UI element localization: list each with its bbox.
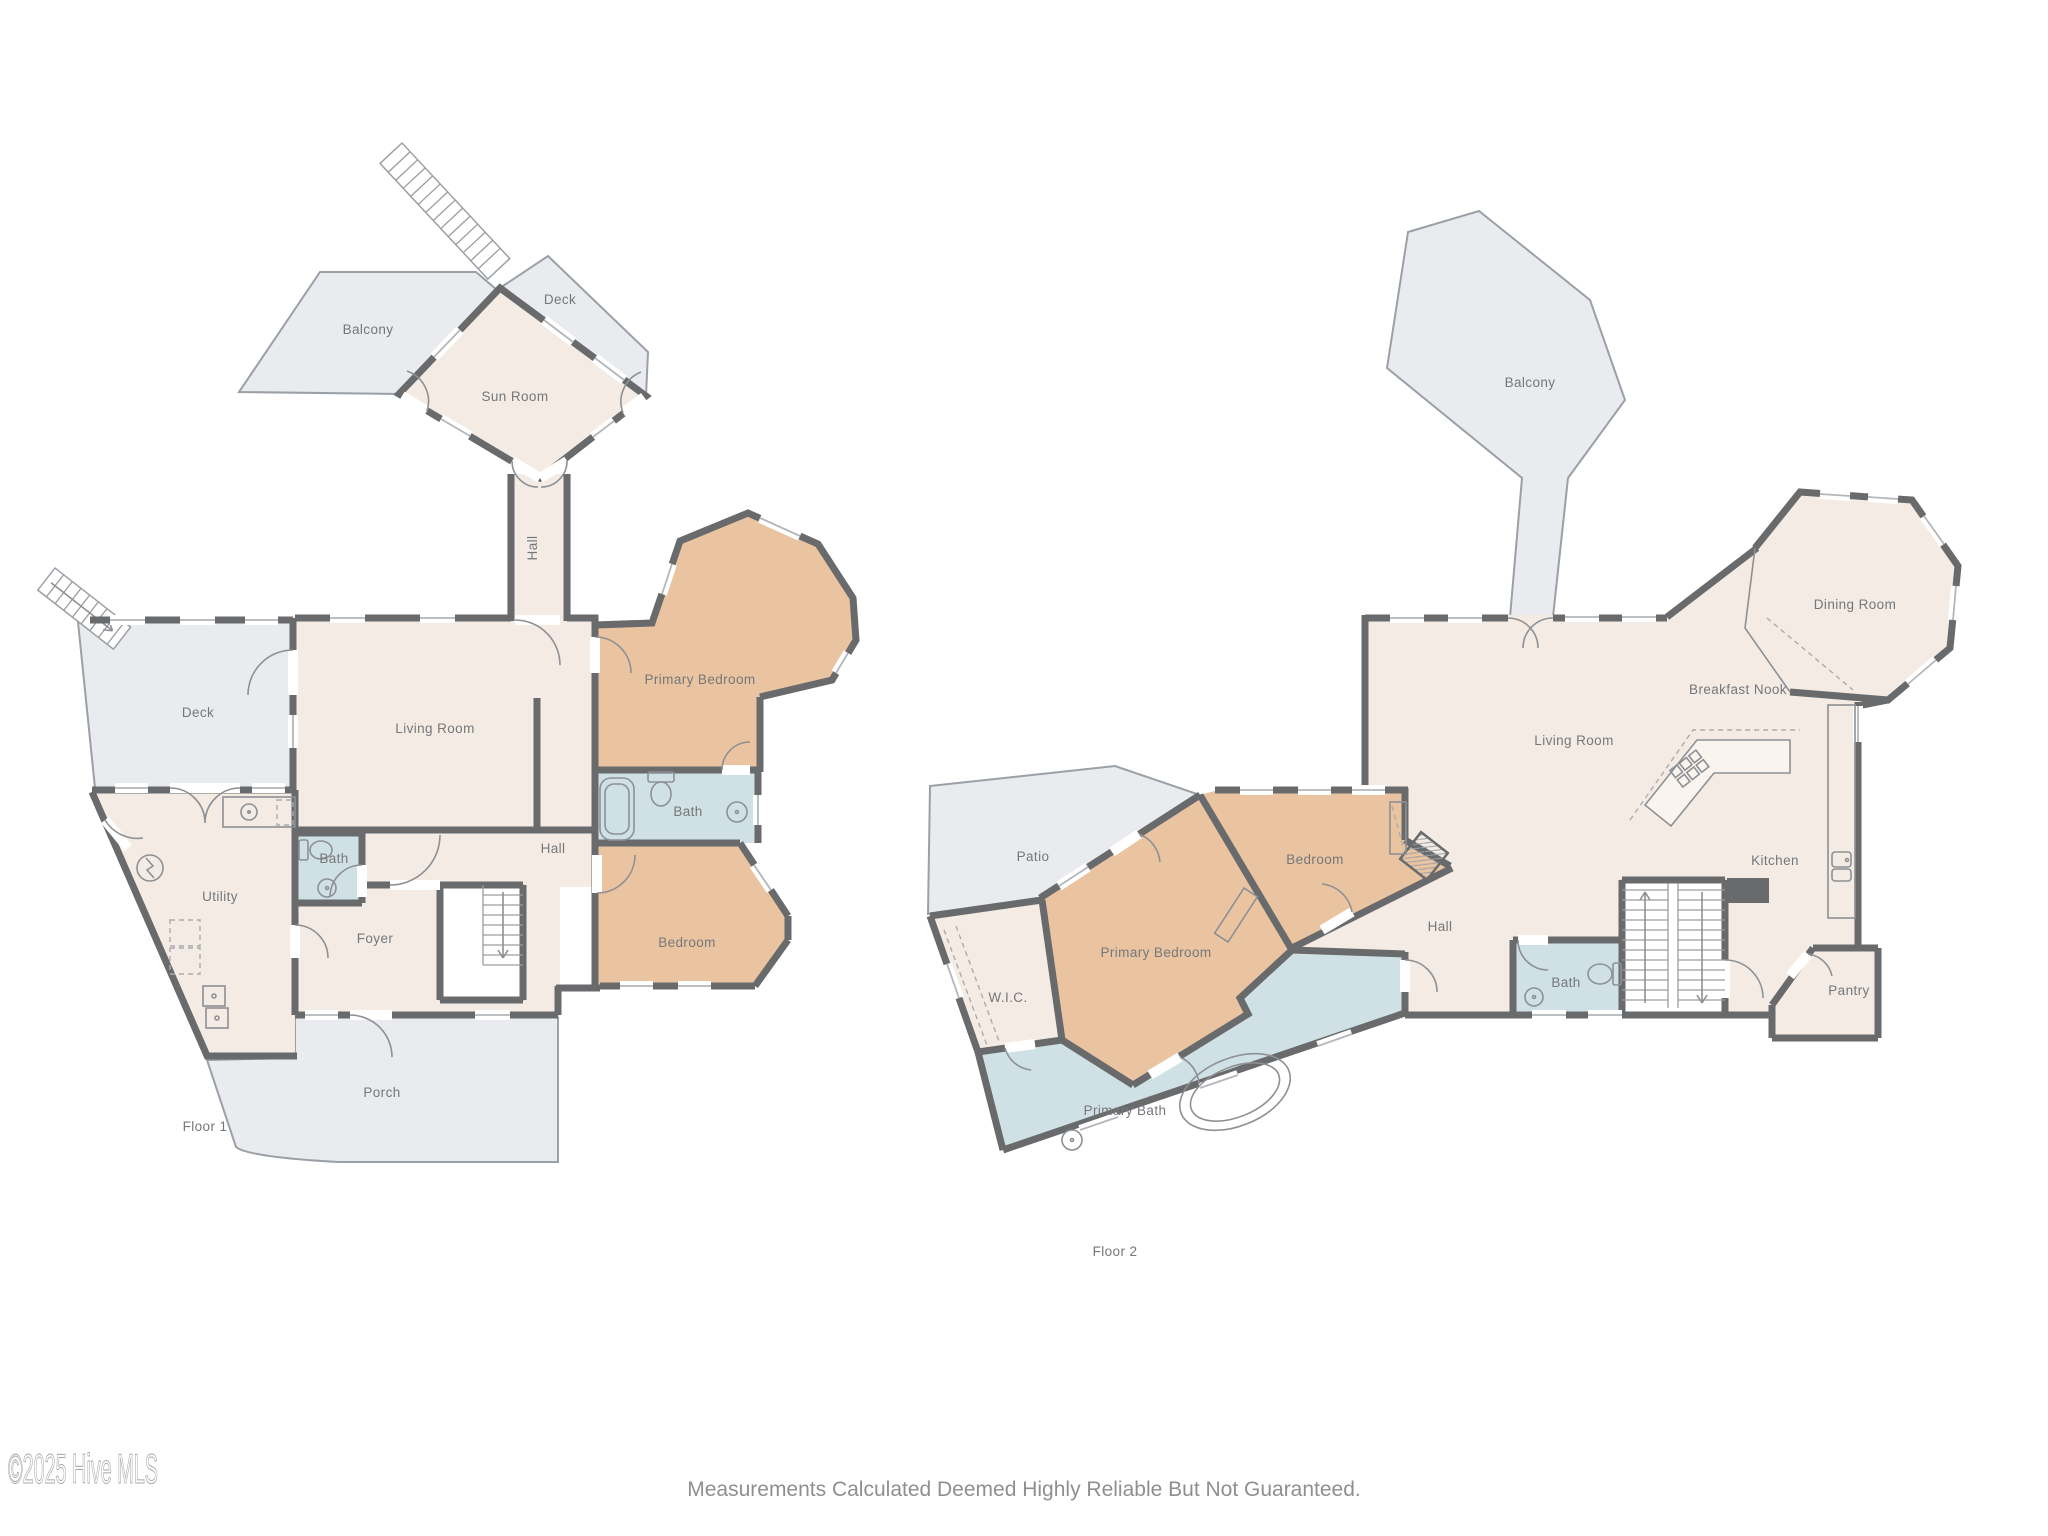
primary-bedroom-f1: [595, 513, 856, 770]
floor2-title: Floor 2: [1093, 1244, 1138, 1259]
room-label-foyer-f1: Foyer: [357, 931, 394, 946]
room-label-bedroom-f1: Bedroom: [658, 935, 716, 950]
room-label-kitchen-f2: Kitchen: [1751, 853, 1799, 868]
room-label-primary-bedroom-f2: Primary Bedroom: [1100, 945, 1211, 960]
room-label-bath-f1: Bath: [673, 804, 702, 819]
room-label-bath-f2: Bath: [1551, 975, 1580, 990]
floorplan-canvas: Balcony Deck Sun Room Hall Deck Living R…: [0, 0, 2048, 1536]
room-label-pantry-f2: Pantry: [1828, 983, 1869, 998]
floor2-plan: Balcony Dining Room Breakfast Nook Livin…: [928, 211, 1958, 1259]
room-label-utility-f1: Utility: [202, 889, 238, 904]
room-label-bedroom-f2: Bedroom: [1286, 852, 1344, 867]
room-label-living-room-f2: Living Room: [1534, 733, 1613, 748]
floor1-plan: Balcony Deck Sun Room Hall Deck Living R…: [38, 143, 856, 1162]
room-label-wic-f2: W.I.C.: [988, 990, 1027, 1005]
room-label-deck-top-f1: Deck: [544, 292, 576, 307]
sink-primary-bath-icon: [1062, 1130, 1082, 1150]
room-label-dining-room-f2: Dining Room: [1814, 597, 1896, 612]
room-label-breakfast-nook-f2: Breakfast Nook: [1689, 682, 1787, 697]
room-label-deck-f1: Deck: [182, 705, 214, 720]
room-label-primary-bedroom-f1: Primary Bedroom: [644, 672, 755, 687]
room-label-hall-lower-f1: Hall: [541, 841, 566, 856]
stair-wall-stub: [1727, 878, 1769, 903]
room-label-living-room-f1: Living Room: [395, 721, 474, 736]
exterior-stairs-icon: [380, 143, 510, 279]
disclaimer-text: Measurements Calculated Deemed Highly Re…: [687, 1478, 1361, 1501]
room-label-hall-f2: Hall: [1428, 919, 1453, 934]
room-label-hall-upper-f1: Hall: [525, 536, 540, 561]
room-label-bath-small-f1: Bath: [319, 851, 348, 866]
staircase-f1: [440, 885, 523, 1000]
room-label-patio-f2: Patio: [1017, 849, 1050, 864]
room-label-sun-room-f1: Sun Room: [482, 389, 549, 404]
hive-mls-watermark: ©2025 Hive MLS: [8, 1445, 158, 1492]
room-label-balcony-f1: Balcony: [343, 322, 394, 337]
room-label-primary-bath-f2: Primary Bath: [1084, 1103, 1167, 1118]
room-label-balcony-f2: Balcony: [1505, 375, 1556, 390]
floorplan-page: Balcony Deck Sun Room Hall Deck Living R…: [0, 0, 2048, 1536]
room-label-porch-f1: Porch: [363, 1085, 400, 1100]
floor1-title: Floor 1: [183, 1119, 228, 1134]
balcony-area-f2: [1387, 211, 1625, 617]
